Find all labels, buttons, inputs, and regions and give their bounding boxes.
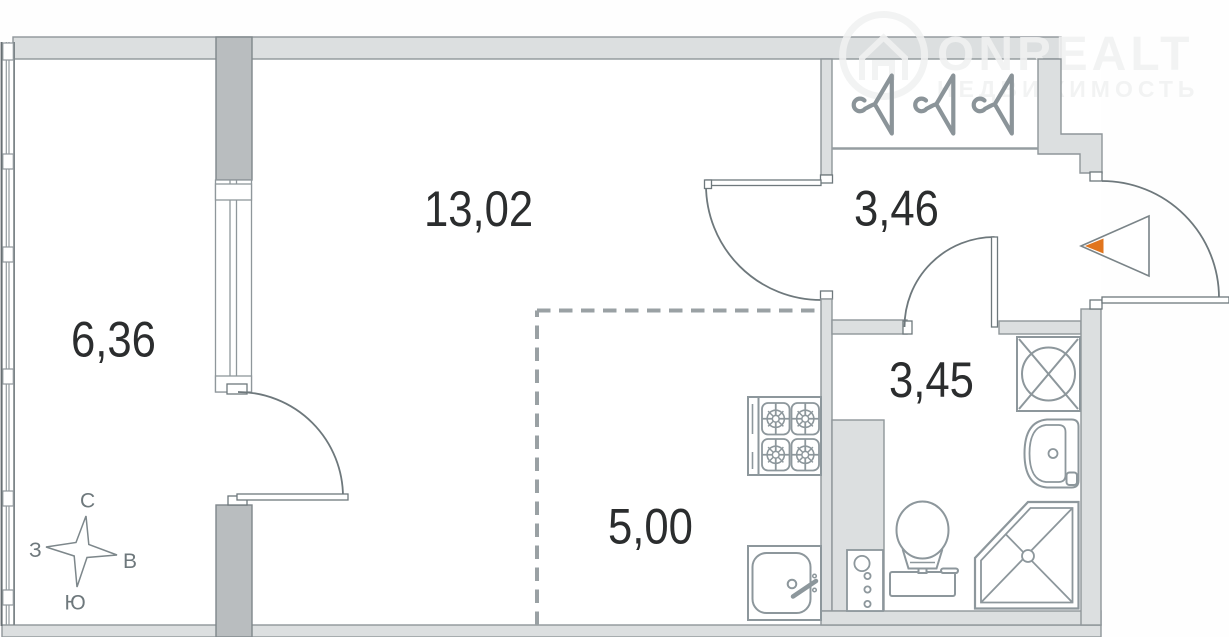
svg-text:5,00: 5,00 [608,499,693,554]
svg-text:Ю: Ю [65,592,86,615]
svg-text:С: С [80,490,95,513]
svg-text:В: В [123,550,137,573]
svg-text:3,46: 3,46 [854,181,939,236]
svg-text:ONREALT: ONREALT [937,28,1193,81]
svg-text:3,45: 3,45 [889,352,974,407]
svg-text:13,02: 13,02 [424,181,533,236]
svg-text:6,36: 6,36 [71,312,156,367]
svg-text:З: З [29,539,42,562]
